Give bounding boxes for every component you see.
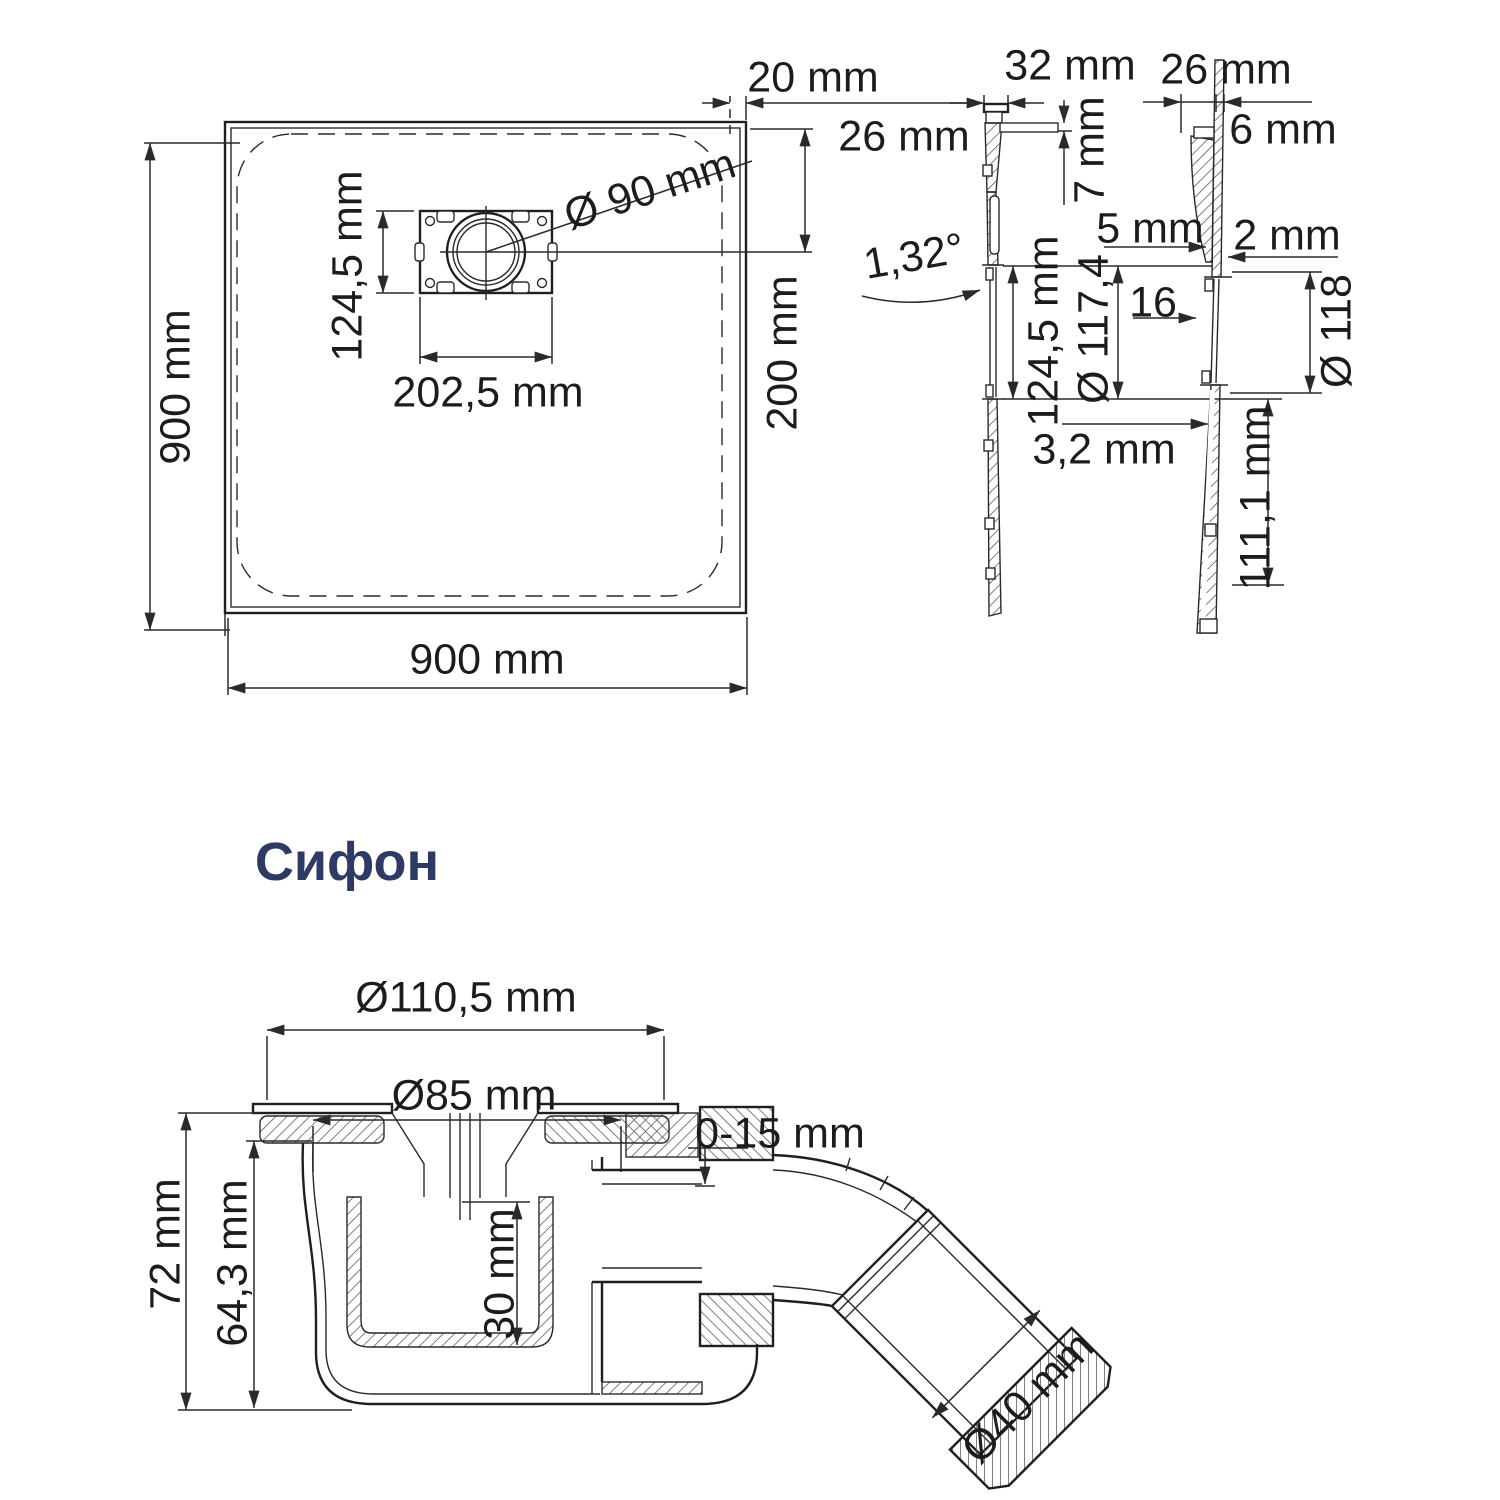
technical-drawing-page: 900 mm 900 mm 124,5 mm 202,5 mm Ø 90 mm … <box>0 0 1500 1500</box>
dim-siphon-flange-diameter: Ø110,5 mm <box>355 977 576 1020</box>
dim-sectionfront-step-c: 16 <box>1129 282 1177 325</box>
dim-sectionside-panel-thickness: 7 mm <box>1069 96 1112 204</box>
dim-sectionfront-drain-bore: Ø 117,4 <box>1073 254 1116 404</box>
dim-edge-gap: 20 mm <box>747 57 878 100</box>
dim-siphon-adjustment: 0-15 mm <box>695 1113 865 1156</box>
dim-sectionside-base-thickness: 3,2 mm <box>1032 429 1175 472</box>
dim-sectionfront-lower-section: 111,1 mm <box>1235 406 1278 591</box>
dim-drain-center-distance: 200 mm <box>762 275 805 430</box>
dim-sectionside-rim-width: 32 mm <box>1004 45 1135 88</box>
dim-siphon-bowl-diameter: Ø85 mm <box>392 1075 557 1118</box>
dim-sectionfront-rim-thickness: 6 mm <box>1229 109 1337 152</box>
dim-sectionside-rim-height: 26 mm <box>838 116 969 159</box>
dim-drain-width: 202,5 mm <box>392 372 583 415</box>
dim-sectionfront-step-b: 2 mm <box>1233 215 1341 258</box>
dim-sectionfront-rim-width: 26 mm <box>1160 49 1291 92</box>
dim-sectionside-drain-opening: 124,5 mm <box>1023 235 1066 426</box>
dim-plan-height: 900 mm <box>155 309 198 464</box>
dim-siphon-body-height: 64,3 mm <box>212 1179 255 1346</box>
dim-siphon-total-height: 72 mm <box>145 1178 188 1309</box>
dim-drain-height: 124,5 mm <box>327 170 370 361</box>
dim-sectionfront-flange-diameter: Ø 118 <box>1316 274 1359 388</box>
dim-plan-width: 900 mm <box>409 639 564 682</box>
dim-siphon-cup-depth: 30 mm <box>479 1208 522 1339</box>
siphon-title: Сифон <box>255 835 439 889</box>
dim-sectionfront-step-a: 5 mm <box>1096 208 1204 251</box>
